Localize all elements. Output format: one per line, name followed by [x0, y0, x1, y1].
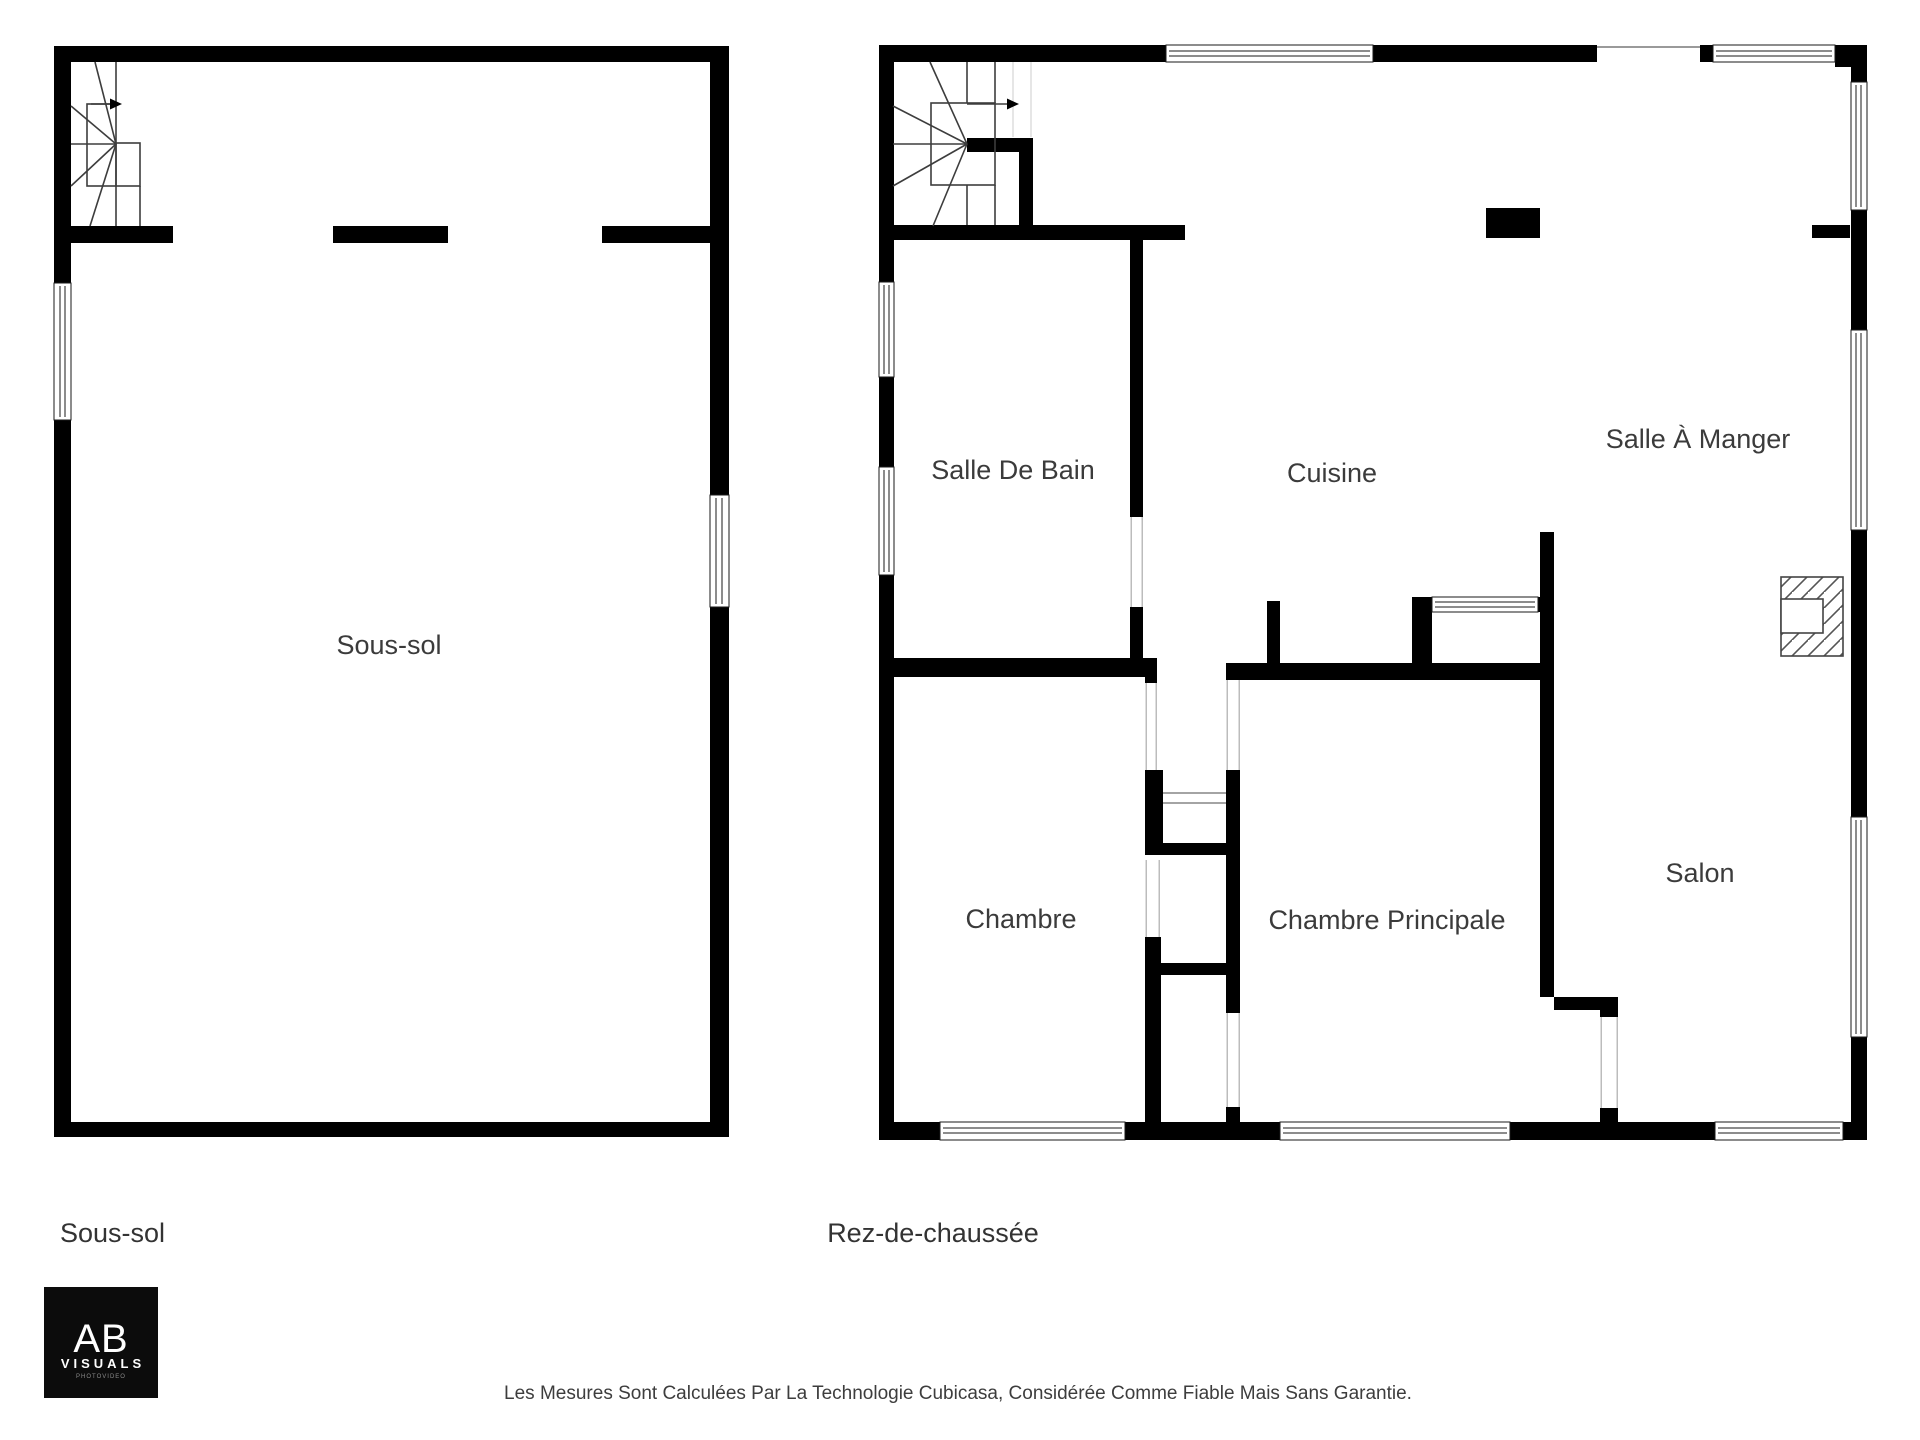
wall-segment	[54, 226, 173, 243]
window	[710, 495, 729, 607]
logo: AB VISUALS PHOTOVIDEO	[44, 1287, 158, 1398]
wall-segment	[54, 420, 71, 1137]
window	[1713, 45, 1835, 62]
window	[879, 467, 894, 575]
wall-segment	[1226, 1107, 1240, 1122]
wall-segment	[879, 377, 894, 467]
interior-window	[1432, 597, 1538, 612]
wall-segment	[1226, 770, 1240, 1013]
window	[54, 283, 71, 420]
door-opening	[1131, 517, 1142, 607]
room-label-salle-de-bain: Salle De Bain	[931, 455, 1095, 485]
wall-segment	[602, 226, 729, 243]
wall-segment	[1267, 601, 1280, 663]
wall-segment	[1373, 45, 1597, 62]
stairs-icon	[71, 62, 140, 226]
wall-segment	[879, 45, 1166, 62]
door-opening	[1227, 1013, 1239, 1107]
wall-segment	[1843, 1122, 1867, 1140]
wall-segment	[1851, 210, 1867, 330]
wall-segment	[710, 607, 729, 1137]
floorplan-rez-de-chaussee: Salle De Bain Cuisine Salle À Manger Cha…	[879, 45, 1867, 1140]
room-label-salon: Salon	[1665, 858, 1734, 888]
room-label-sous-sol: Sous-sol	[336, 630, 441, 660]
floorplan-canvas: Sous-sol	[0, 0, 1920, 1440]
logo-name: VISUALS	[61, 1356, 145, 1371]
window	[1715, 1122, 1843, 1140]
wall-segment	[879, 225, 1185, 240]
stair-direction-arrow-icon	[967, 99, 1019, 110]
wall-segment	[1851, 530, 1867, 817]
wall-segment	[54, 1122, 729, 1137]
logo-initials: AB	[73, 1317, 128, 1361]
wall-segment	[1851, 45, 1867, 82]
window	[1851, 82, 1867, 210]
chimney-block	[1486, 208, 1540, 238]
wall-segment	[710, 46, 729, 495]
wall-segment	[54, 46, 71, 283]
wall-segment	[1125, 1122, 1280, 1140]
wall-segment	[1155, 792, 1163, 803]
fireplace-icon	[1781, 577, 1843, 656]
wall-segment	[1412, 597, 1432, 663]
wall-segment	[1145, 770, 1163, 843]
wall-segment	[879, 1122, 940, 1140]
window	[879, 282, 894, 377]
wall-segment	[1145, 843, 1236, 855]
wall-segment	[1812, 225, 1850, 238]
window	[1851, 817, 1867, 1037]
wall-segment	[879, 45, 894, 282]
door-opening	[1146, 683, 1156, 770]
door-opening	[1227, 680, 1239, 770]
wall-segment	[1145, 937, 1161, 1122]
wall-segment	[1700, 45, 1713, 62]
window	[1851, 330, 1867, 530]
floorplan-sous-sol: Sous-sol	[54, 46, 729, 1137]
room-label-cuisine: Cuisine	[1287, 458, 1377, 488]
wall-segment	[1600, 1108, 1618, 1122]
wall-segment	[333, 226, 448, 243]
wall-segment	[1226, 663, 1554, 680]
window	[1280, 1122, 1510, 1140]
window	[1166, 45, 1373, 62]
wall-segment	[1510, 1122, 1715, 1140]
window	[940, 1122, 1125, 1140]
room-label-chambre: Chambre	[965, 904, 1076, 934]
wall-segment	[1019, 138, 1033, 237]
door-opening	[1146, 860, 1159, 937]
floorplan-page: Sous-sol	[0, 0, 1920, 1440]
logo-tagline: PHOTOVIDEO	[76, 1374, 126, 1380]
room-label-salle-a-manger: Salle À Manger	[1606, 424, 1791, 454]
door-opening	[1601, 1017, 1617, 1108]
wall-segment	[1161, 963, 1226, 975]
sliding-door	[1163, 793, 1226, 803]
floor-label-sous-sol: Sous-sol	[60, 1218, 165, 1248]
wall-segment	[893, 658, 1157, 677]
room-label-chambre-principale: Chambre Principale	[1268, 905, 1505, 935]
floor-label-rez-de-chaussee: Rez-de-chaussée	[827, 1218, 1039, 1248]
disclaimer-text: Les Mesures Sont Calculées Par La Techno…	[504, 1383, 1412, 1404]
wall-segment	[879, 575, 894, 1140]
wall-segment	[1540, 532, 1554, 997]
wall-segment	[54, 46, 729, 62]
wall-segment	[1600, 997, 1618, 1017]
wall-segment	[1130, 240, 1143, 517]
wall-segment	[1130, 607, 1143, 658]
wall-segment	[1145, 658, 1157, 683]
